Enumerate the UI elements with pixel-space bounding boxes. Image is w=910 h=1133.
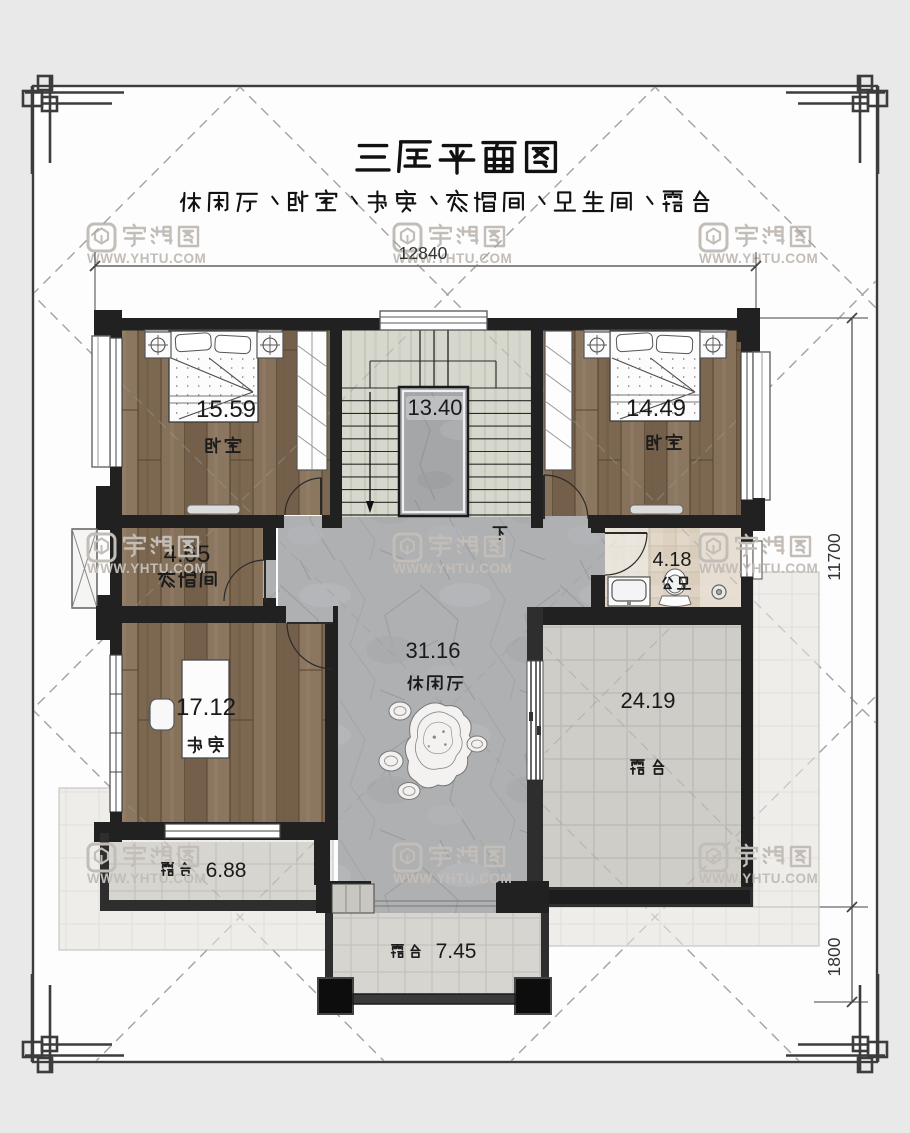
- svg-text:11700: 11700: [824, 533, 844, 581]
- svg-text:14.49: 14.49: [626, 395, 686, 422]
- svg-text:17.12: 17.12: [176, 694, 236, 721]
- svg-text:WWW.YHTU.COM: WWW.YHTU.COM: [699, 871, 818, 886]
- svg-text:13.40: 13.40: [407, 395, 462, 420]
- svg-text:6.88: 6.88: [206, 859, 247, 882]
- svg-text:1800: 1800: [824, 937, 844, 976]
- svg-text:7.45: 7.45: [436, 940, 477, 963]
- svg-text:24.19: 24.19: [620, 688, 675, 713]
- svg-text:4.18: 4.18: [653, 549, 692, 571]
- svg-text:15.59: 15.59: [196, 396, 256, 423]
- svg-text:WWW.YHTU.COM: WWW.YHTU.COM: [699, 561, 818, 576]
- svg-text:31.16: 31.16: [405, 638, 460, 663]
- svg-text:WWW.YHTU.COM: WWW.YHTU.COM: [87, 251, 206, 266]
- svg-text:WWW.YHTU.COM: WWW.YHTU.COM: [87, 561, 206, 576]
- svg-text:WWW.YHTU.COM: WWW.YHTU.COM: [87, 871, 206, 886]
- svg-text:WWW.YHTU.COM: WWW.YHTU.COM: [393, 871, 512, 886]
- svg-text:WWW.YHTU.COM: WWW.YHTU.COM: [393, 561, 512, 576]
